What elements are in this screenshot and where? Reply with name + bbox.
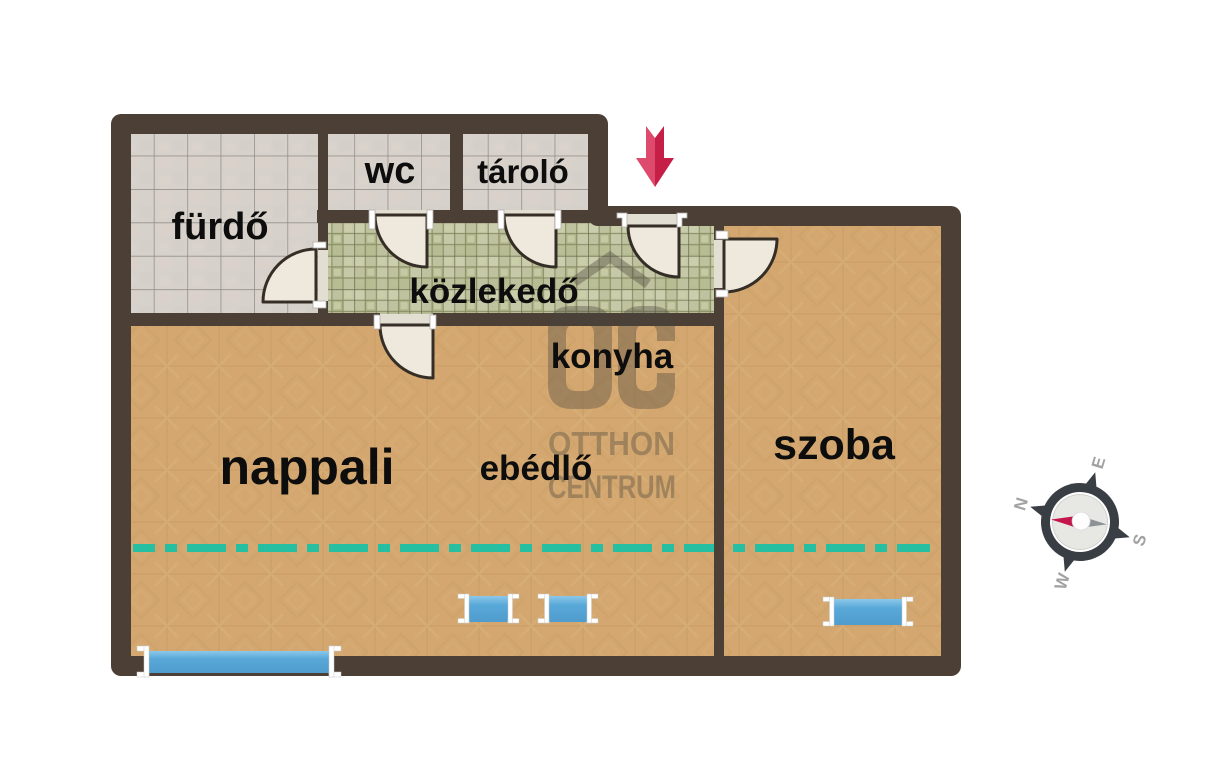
- svg-text:ebédlő: ebédlő: [480, 449, 593, 488]
- svg-text:közlekedő: közlekedő: [409, 272, 578, 311]
- svg-text:wc: wc: [364, 150, 416, 192]
- svg-text:nappali: nappali: [219, 439, 394, 495]
- svg-text:fürdő: fürdő: [171, 206, 268, 248]
- svg-text:tároló: tároló: [477, 153, 569, 190]
- svg-text:konyha: konyha: [551, 337, 674, 376]
- svg-text:szoba: szoba: [773, 421, 896, 469]
